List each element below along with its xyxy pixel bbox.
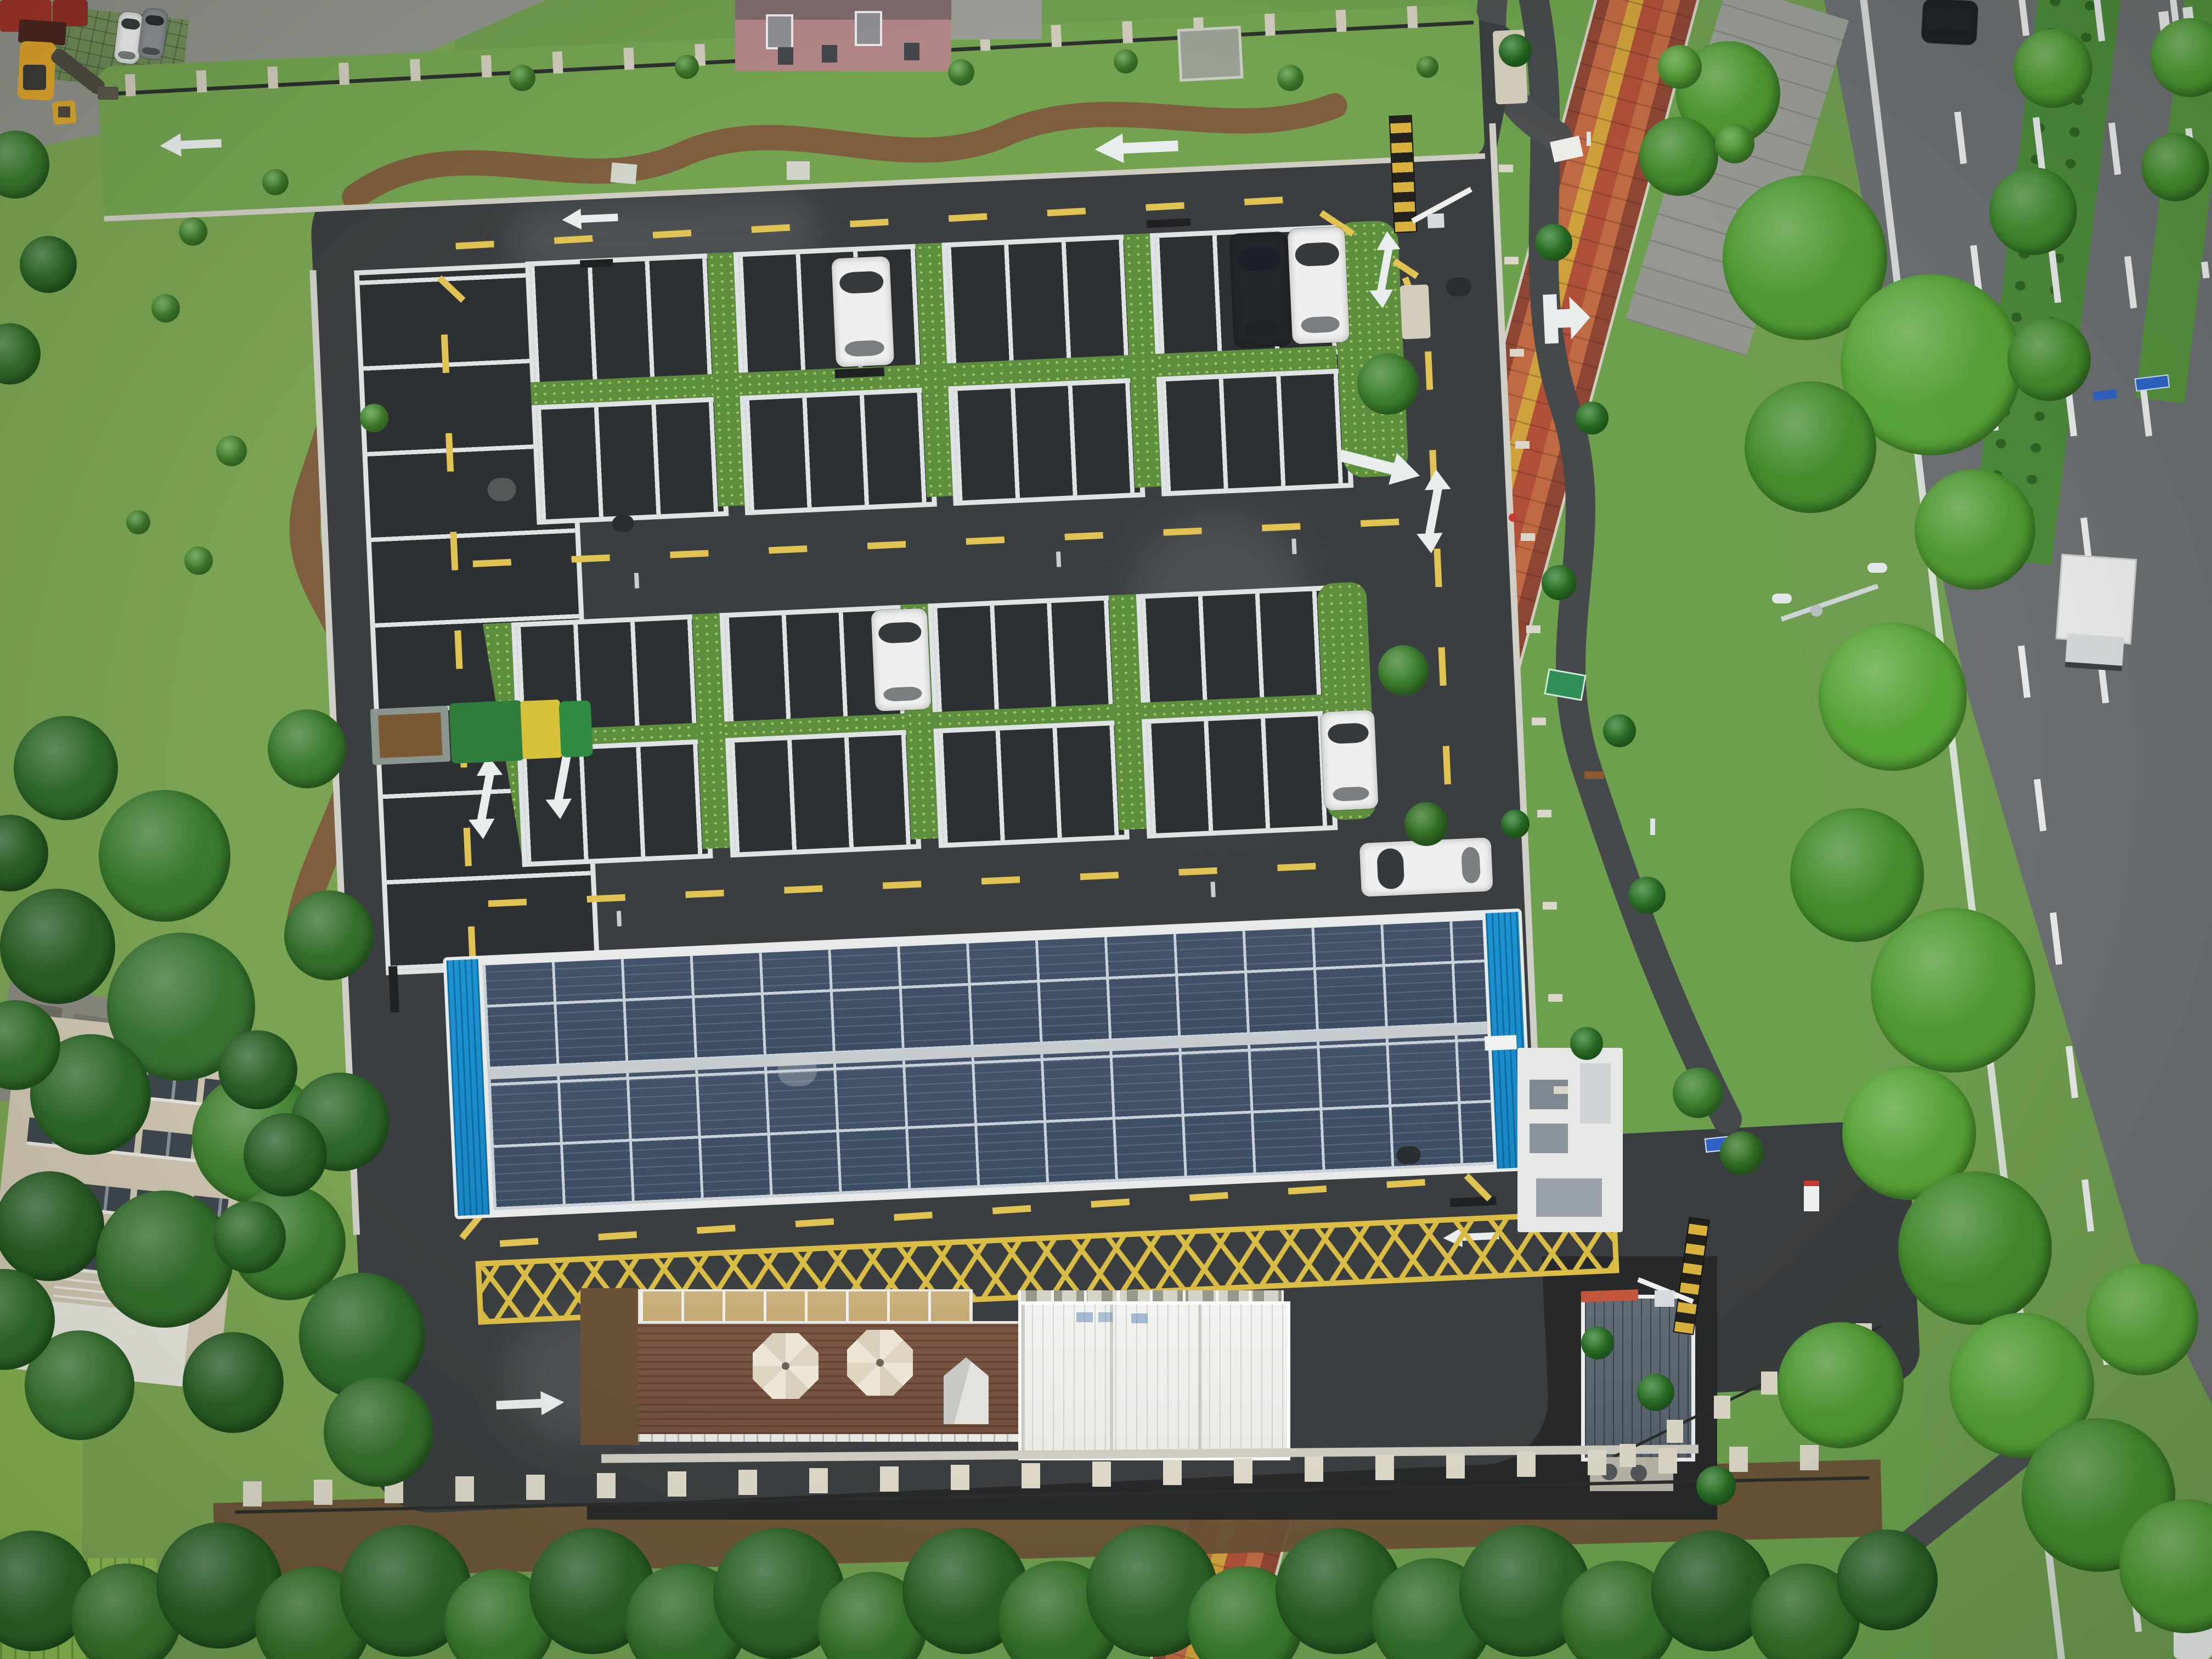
tree <box>1628 877 1666 914</box>
tree <box>14 716 118 820</box>
tree <box>1658 45 1702 89</box>
tree <box>1637 1374 1674 1411</box>
tree <box>244 1113 327 1197</box>
tree <box>324 1377 433 1487</box>
tree <box>948 59 974 86</box>
tree-canopy-layer <box>0 0 2212 1659</box>
tree <box>2013 29 2092 108</box>
tree <box>1378 645 1429 696</box>
tree <box>1535 224 1572 261</box>
tree <box>1898 1171 2052 1325</box>
tree <box>1570 1027 1603 1060</box>
tree <box>1696 1466 1736 1505</box>
tree <box>1720 1131 1764 1175</box>
tree <box>1603 714 1636 747</box>
tree <box>1790 808 1924 942</box>
tree <box>509 65 535 91</box>
tree <box>2086 1263 2198 1375</box>
tree <box>1715 124 1754 163</box>
tree <box>675 55 699 79</box>
tree <box>99 790 230 922</box>
tree <box>1639 117 1718 196</box>
tree <box>179 217 207 246</box>
tree <box>1871 908 2035 1073</box>
tree <box>1837 1530 1938 1630</box>
tree <box>151 294 180 323</box>
tree <box>262 169 289 195</box>
tree <box>1404 802 1448 846</box>
tree <box>1989 167 2077 255</box>
tree <box>1357 353 1419 415</box>
tree <box>0 323 41 385</box>
aerial-parking-lot-photo: Top-down aerial drone photograph of a ne… <box>0 0 2212 1659</box>
tree <box>2007 318 2091 401</box>
tree <box>1499 34 1532 67</box>
tree <box>2151 18 2212 97</box>
tree <box>0 1171 104 1281</box>
tree <box>20 236 77 293</box>
tree <box>183 1332 284 1433</box>
tree <box>213 1201 286 1273</box>
tree <box>1745 381 1876 513</box>
tree <box>1576 402 1609 435</box>
tree <box>216 436 247 466</box>
tree <box>126 510 150 534</box>
tree <box>0 131 49 199</box>
tree <box>1542 565 1577 600</box>
tree <box>1819 623 1967 771</box>
tree <box>1501 810 1530 838</box>
tree <box>0 815 48 891</box>
tree <box>268 709 347 788</box>
tree <box>284 890 374 980</box>
tree <box>1114 49 1138 74</box>
tree <box>184 546 213 575</box>
tree <box>1417 56 1438 78</box>
tree <box>1915 469 2035 590</box>
tree <box>1581 1327 1614 1359</box>
tree <box>1277 65 1304 91</box>
tree <box>1673 1068 1723 1118</box>
tree <box>218 1030 297 1109</box>
tree <box>2141 133 2209 201</box>
tree <box>360 404 388 432</box>
tree <box>1778 1322 1904 1448</box>
tree <box>96 1190 233 1328</box>
tree <box>0 889 115 1004</box>
